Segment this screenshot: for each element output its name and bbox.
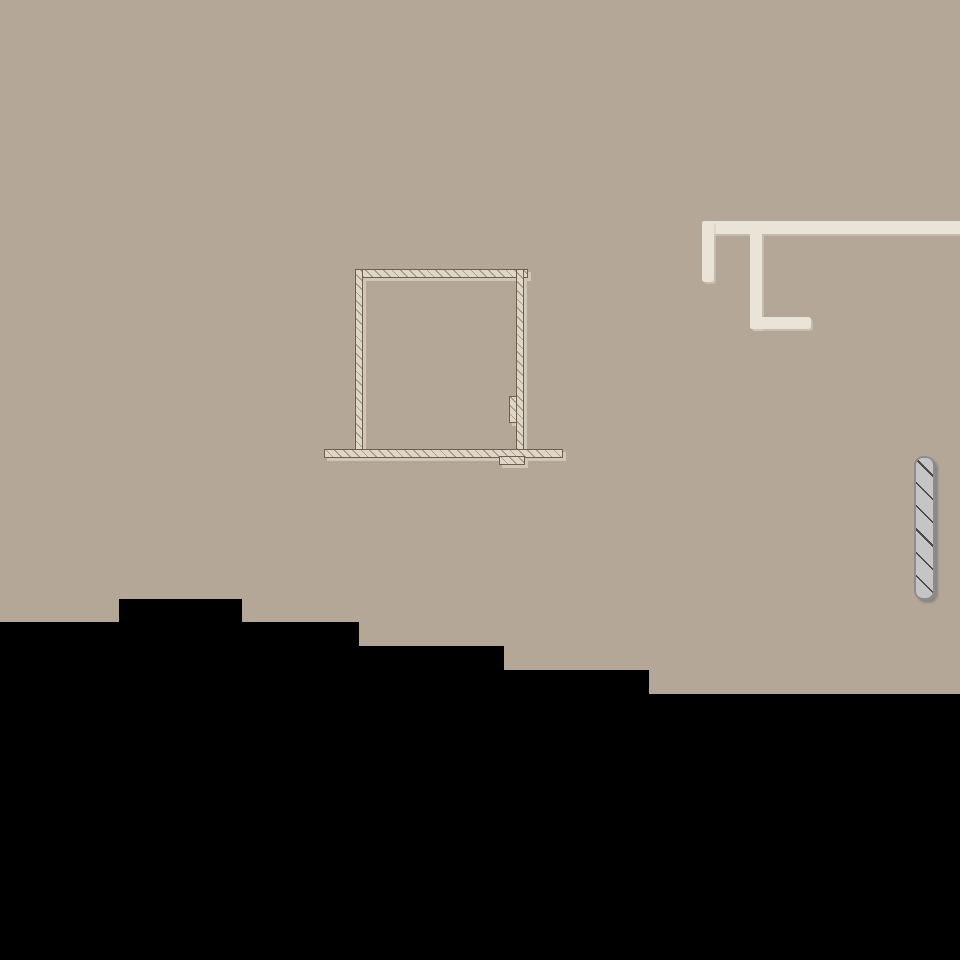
drawing-canvas[interactable] — [0, 0, 960, 960]
room-left-wall — [355, 269, 363, 450]
room-right-wall — [516, 269, 524, 457]
room-section-drawing — [0, 0, 960, 960]
wall-footing — [499, 456, 525, 465]
door-jamb — [509, 396, 517, 423]
floor-slab — [324, 449, 563, 458]
insulation-strip — [914, 456, 935, 600]
room-top-wall — [355, 269, 528, 278]
